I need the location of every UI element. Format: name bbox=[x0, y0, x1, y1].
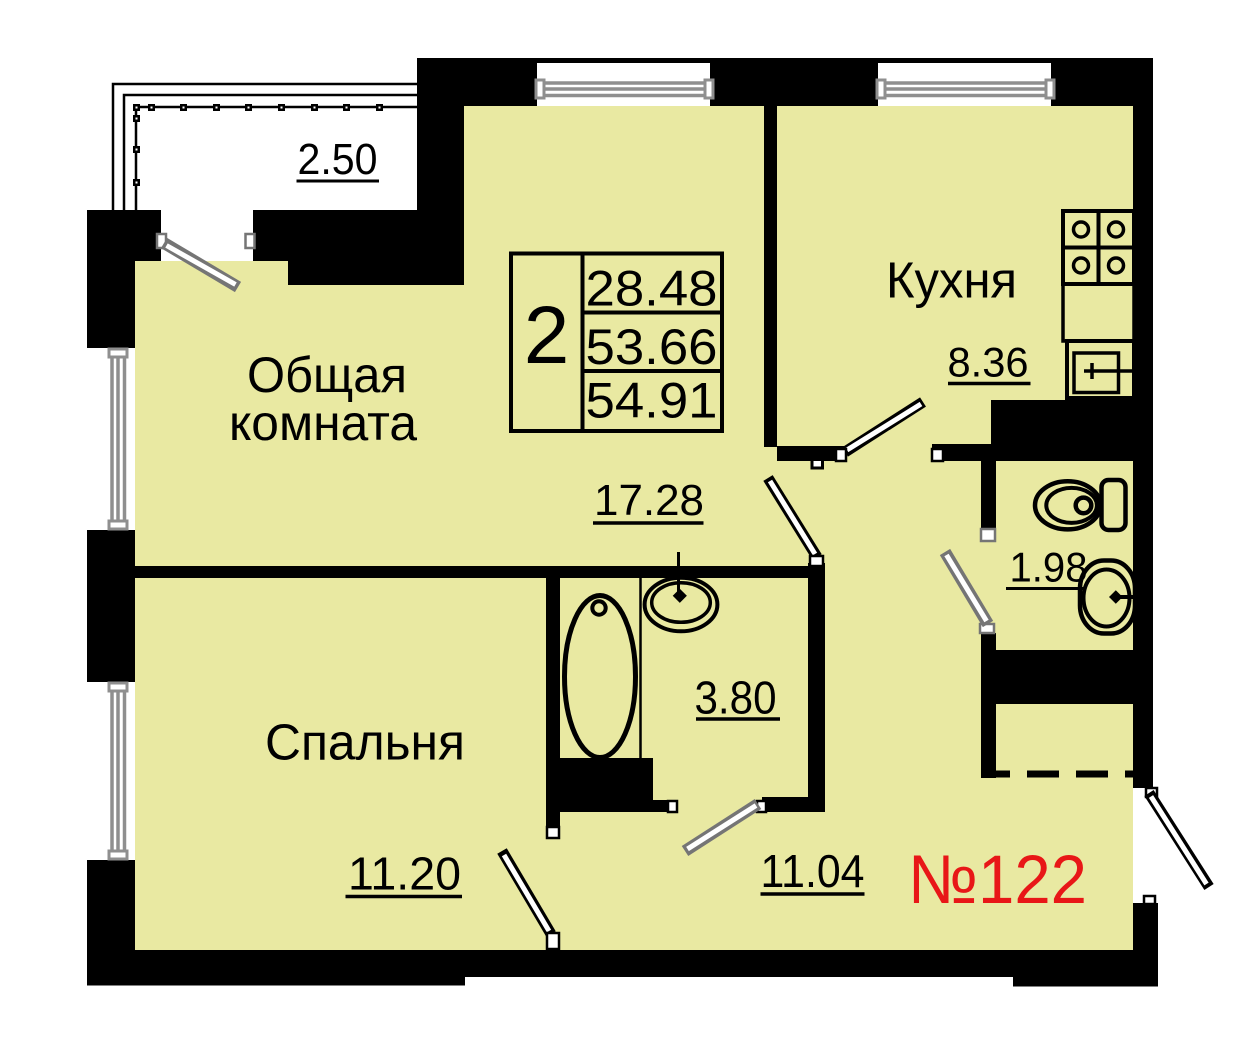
svg-text:8.36: 8.36 bbox=[948, 339, 1029, 386]
svg-text:2.50: 2.50 bbox=[298, 135, 378, 184]
svg-text:3.80: 3.80 bbox=[695, 672, 777, 724]
svg-text:54.91: 54.91 bbox=[586, 373, 718, 429]
svg-text:Спальня: Спальня bbox=[265, 714, 465, 771]
svg-text:17.28: 17.28 bbox=[594, 476, 704, 525]
svg-text:11.20: 11.20 bbox=[348, 848, 461, 900]
svg-text:53.66: 53.66 bbox=[586, 319, 718, 375]
svg-text:11.04: 11.04 bbox=[761, 845, 865, 897]
svg-text:2: 2 bbox=[524, 290, 570, 381]
svg-text:комната: комната bbox=[229, 395, 417, 451]
svg-text:28.48: 28.48 bbox=[586, 261, 718, 317]
svg-text:Кухня: Кухня bbox=[886, 252, 1017, 309]
svg-text:1.98: 1.98 bbox=[1010, 544, 1088, 591]
svg-text:№122: №122 bbox=[908, 841, 1087, 918]
